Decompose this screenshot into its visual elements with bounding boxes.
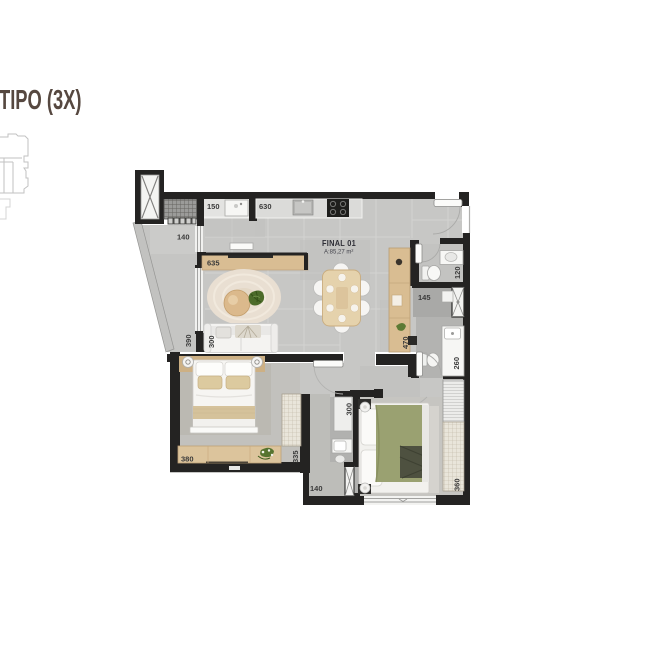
svg-text:260: 260 — [452, 357, 461, 370]
svg-text:145: 145 — [418, 293, 431, 302]
svg-text:140: 140 — [177, 233, 190, 242]
svg-text:360: 360 — [453, 478, 462, 491]
svg-text:300: 300 — [345, 403, 354, 416]
svg-text:A:85,27 m²: A:85,27 m² — [324, 250, 353, 256]
svg-text:150: 150 — [207, 202, 220, 211]
svg-text:335: 335 — [291, 450, 300, 463]
svg-text:TIPO (3X): TIPO (3X) — [0, 85, 82, 116]
svg-text:300: 300 — [207, 335, 216, 348]
svg-text:470: 470 — [401, 336, 410, 349]
svg-text:120: 120 — [453, 266, 462, 279]
svg-text:630: 630 — [259, 202, 272, 211]
svg-text:FINAL 01: FINAL 01 — [322, 239, 356, 248]
svg-text:380: 380 — [181, 455, 194, 464]
svg-text:390: 390 — [184, 334, 193, 347]
svg-text:140: 140 — [310, 484, 323, 493]
svg-text:635: 635 — [207, 259, 220, 268]
